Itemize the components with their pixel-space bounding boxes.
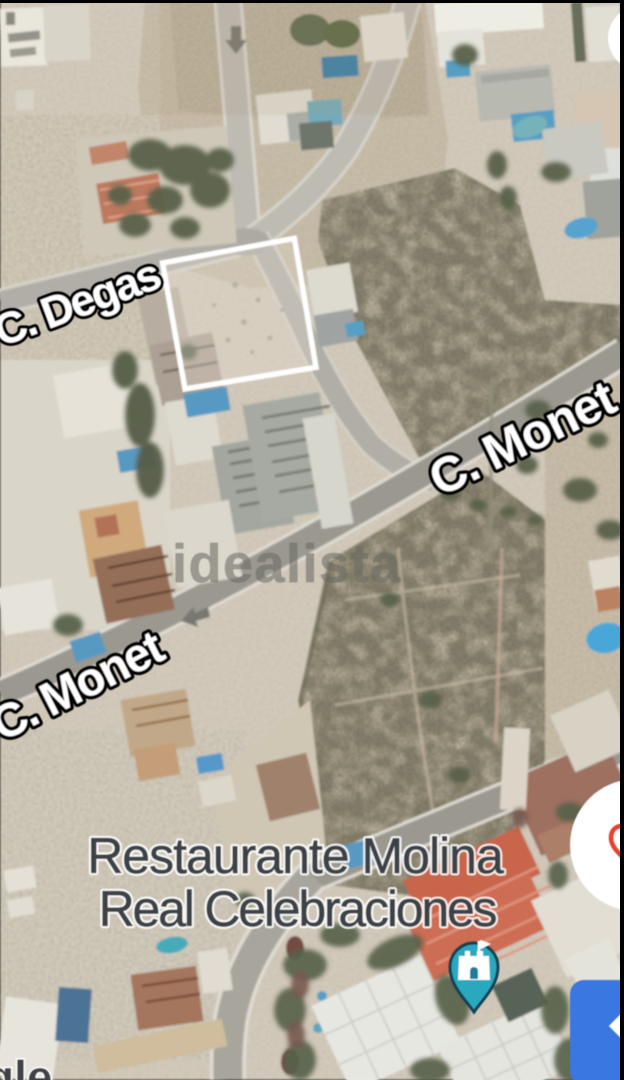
svg-text:idealista: idealista xyxy=(172,534,402,594)
svg-text:Restaurante Molina: Restaurante Molina xyxy=(87,828,504,884)
svg-text:Real Celebraciones: Real Celebraciones xyxy=(99,881,497,937)
svg-text:gle: gle xyxy=(0,1051,52,1080)
